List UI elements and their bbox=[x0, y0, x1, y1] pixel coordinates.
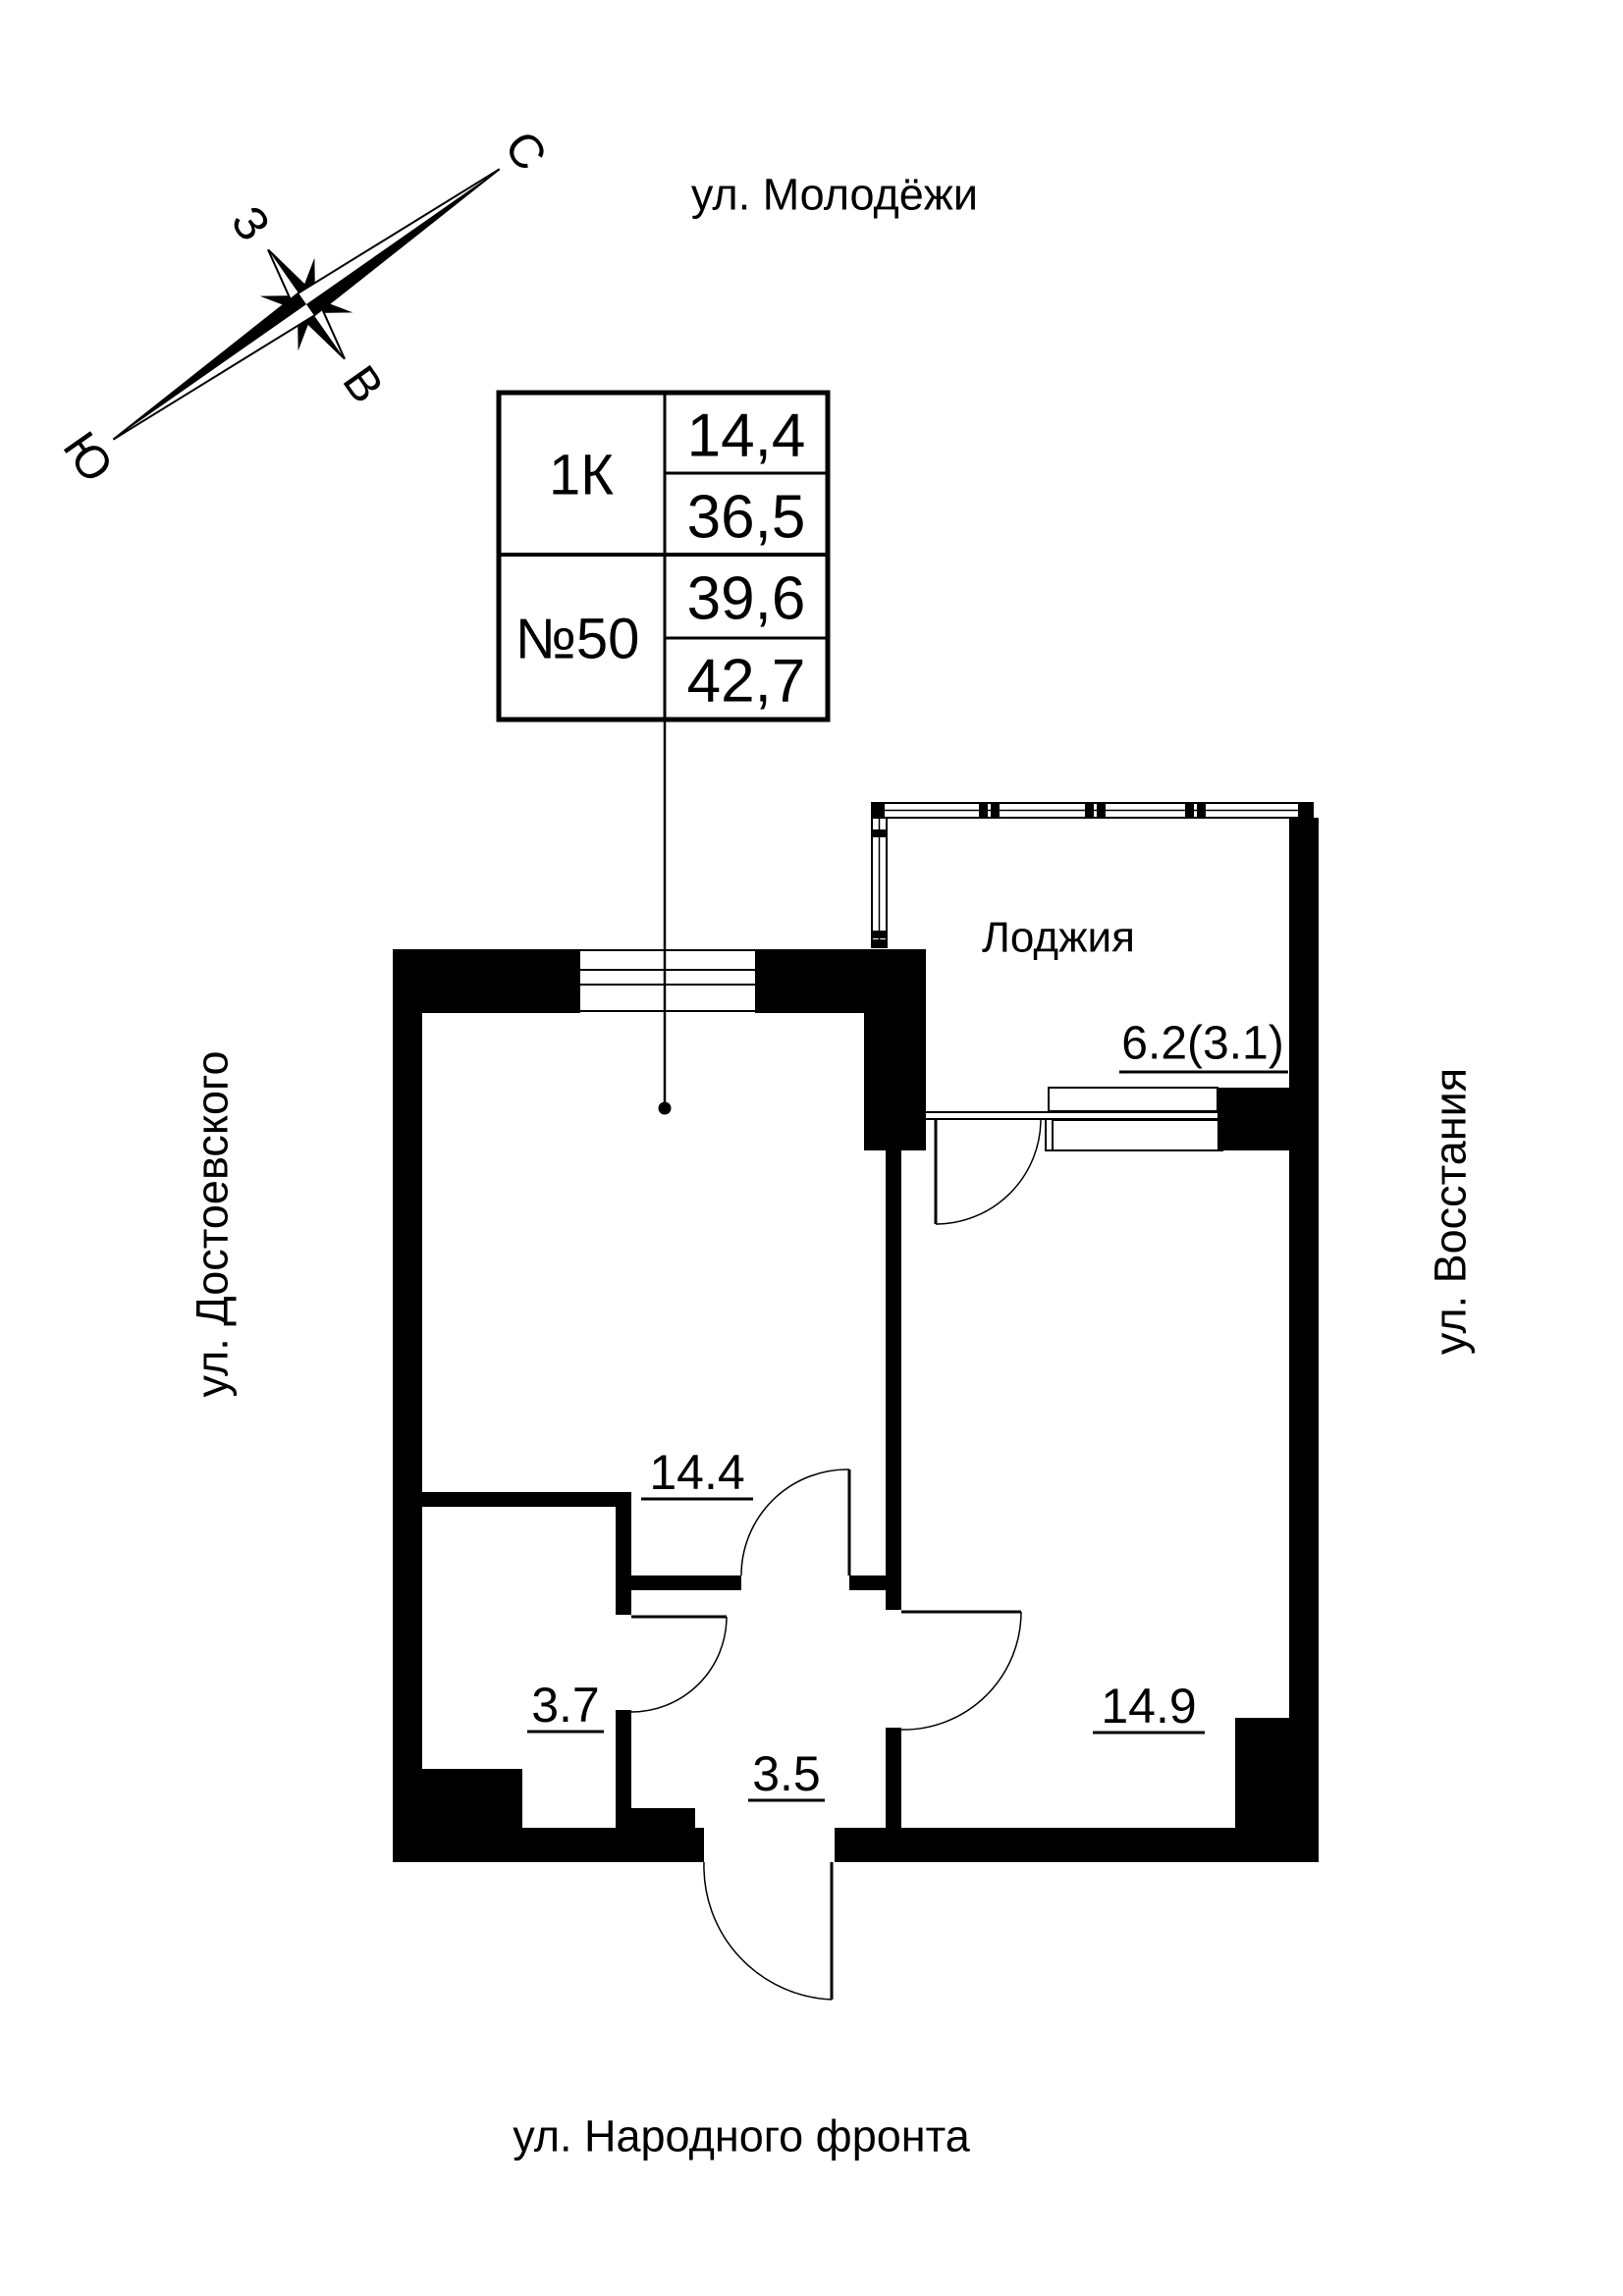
closet-door bbox=[631, 1617, 727, 1712]
mullion-2a bbox=[1085, 803, 1094, 818]
wall-top-left-of-window bbox=[393, 949, 579, 1013]
street-label-bottom: ул. Народного фронта bbox=[513, 2111, 970, 2162]
hall-area-label: 3.5 bbox=[752, 1746, 821, 1801]
area-value-2: 36,5 bbox=[687, 484, 806, 552]
entrance-door-arc bbox=[704, 1862, 832, 2000]
area-value-4: 42,7 bbox=[687, 648, 806, 716]
wall-loggia-right-cap bbox=[1298, 803, 1313, 842]
balcony-door-arc bbox=[936, 1119, 1041, 1224]
area-value-1: 14,4 bbox=[687, 402, 806, 470]
loggia-name-label: Лоджия bbox=[982, 914, 1135, 962]
wall-bottom-left bbox=[393, 1828, 704, 1862]
wall-bottom-right bbox=[835, 1828, 1319, 1862]
bedroom-door-arc bbox=[901, 1612, 1021, 1730]
living-door-arc bbox=[741, 1469, 849, 1575]
compass-label-west: З bbox=[221, 197, 280, 250]
wall-between-living-and-bedroom bbox=[886, 1150, 901, 1610]
leader-dot bbox=[659, 1102, 672, 1115]
wall-hall-top-left bbox=[631, 1575, 741, 1590]
wall-corner-block-loggia bbox=[864, 1013, 926, 1150]
mullion-2b bbox=[1097, 803, 1106, 818]
bedroom-area-label: 14.9 bbox=[1101, 1679, 1196, 1734]
street-label-top: ул. Молодёжи bbox=[691, 170, 978, 220]
mullion-1a bbox=[979, 803, 988, 818]
mullion-left-2 bbox=[872, 931, 887, 938]
balcony-door bbox=[936, 1119, 1041, 1224]
living-room-window bbox=[568, 949, 768, 1013]
mullion-cap-left bbox=[872, 803, 885, 818]
wall-hall-bottom-step bbox=[628, 1808, 695, 1828]
entrance-door bbox=[704, 1862, 832, 2000]
closet-door-arc bbox=[631, 1617, 727, 1712]
loggia-window-outer bbox=[1049, 1088, 1217, 1111]
living-room-door bbox=[741, 1469, 849, 1575]
mullion-3a bbox=[1185, 803, 1194, 818]
wall-top-right-of-window bbox=[756, 949, 926, 1013]
wall-hall-top-right bbox=[849, 1575, 886, 1590]
floor-plan-page: С Ю З В ул. Молодёжи ул. Достоевского ул… bbox=[0, 0, 1623, 2296]
apartment-type: 1К bbox=[549, 444, 614, 507]
apartment-number: №50 bbox=[515, 608, 640, 671]
area-value-3: 39,6 bbox=[687, 565, 806, 633]
mullion-left-1 bbox=[872, 829, 887, 837]
wall-exterior-right bbox=[1289, 818, 1319, 1862]
living-room-area-label: 14.4 bbox=[649, 1445, 744, 1500]
balcony-door-jamb bbox=[1046, 1119, 1053, 1150]
street-label-left: ул. Достоевского bbox=[188, 1050, 238, 1397]
window-frame bbox=[568, 970, 768, 985]
wall-exterior-left bbox=[393, 949, 422, 1862]
bedroom-door bbox=[901, 1612, 1021, 1730]
loggia-window-inner bbox=[1053, 1120, 1222, 1150]
wall-loggia-bottom-right-block bbox=[1217, 1088, 1289, 1150]
wall-bedroom-pier bbox=[1235, 1718, 1289, 1828]
street-label-right: ул. Восстания bbox=[1426, 1068, 1476, 1355]
compass-label-east: В bbox=[332, 357, 393, 413]
wall-closet-top bbox=[422, 1492, 628, 1507]
compass-label-north: С bbox=[494, 123, 556, 181]
loggia-area-label: 6.2(3.1) bbox=[1121, 1018, 1283, 1070]
loggia-sill-and-window bbox=[926, 1088, 1222, 1150]
wall-bottom-left-step bbox=[422, 1769, 522, 1828]
floor-plan-drawing: С Ю З В ул. Молодёжи ул. Достоевского ул… bbox=[0, 0, 1623, 2296]
mullion-3b bbox=[1197, 803, 1206, 818]
mullion-1b bbox=[991, 803, 1000, 818]
compass-rose: С Ю З В bbox=[2, 44, 612, 565]
wall-between-hall-and-bedroom-lower bbox=[886, 1728, 901, 1828]
compass-label-south: Ю bbox=[53, 423, 123, 492]
wall-closet-right-upper bbox=[616, 1492, 631, 1615]
mullion-left-3 bbox=[872, 939, 887, 947]
closet-area-label: 3.7 bbox=[531, 1678, 600, 1733]
